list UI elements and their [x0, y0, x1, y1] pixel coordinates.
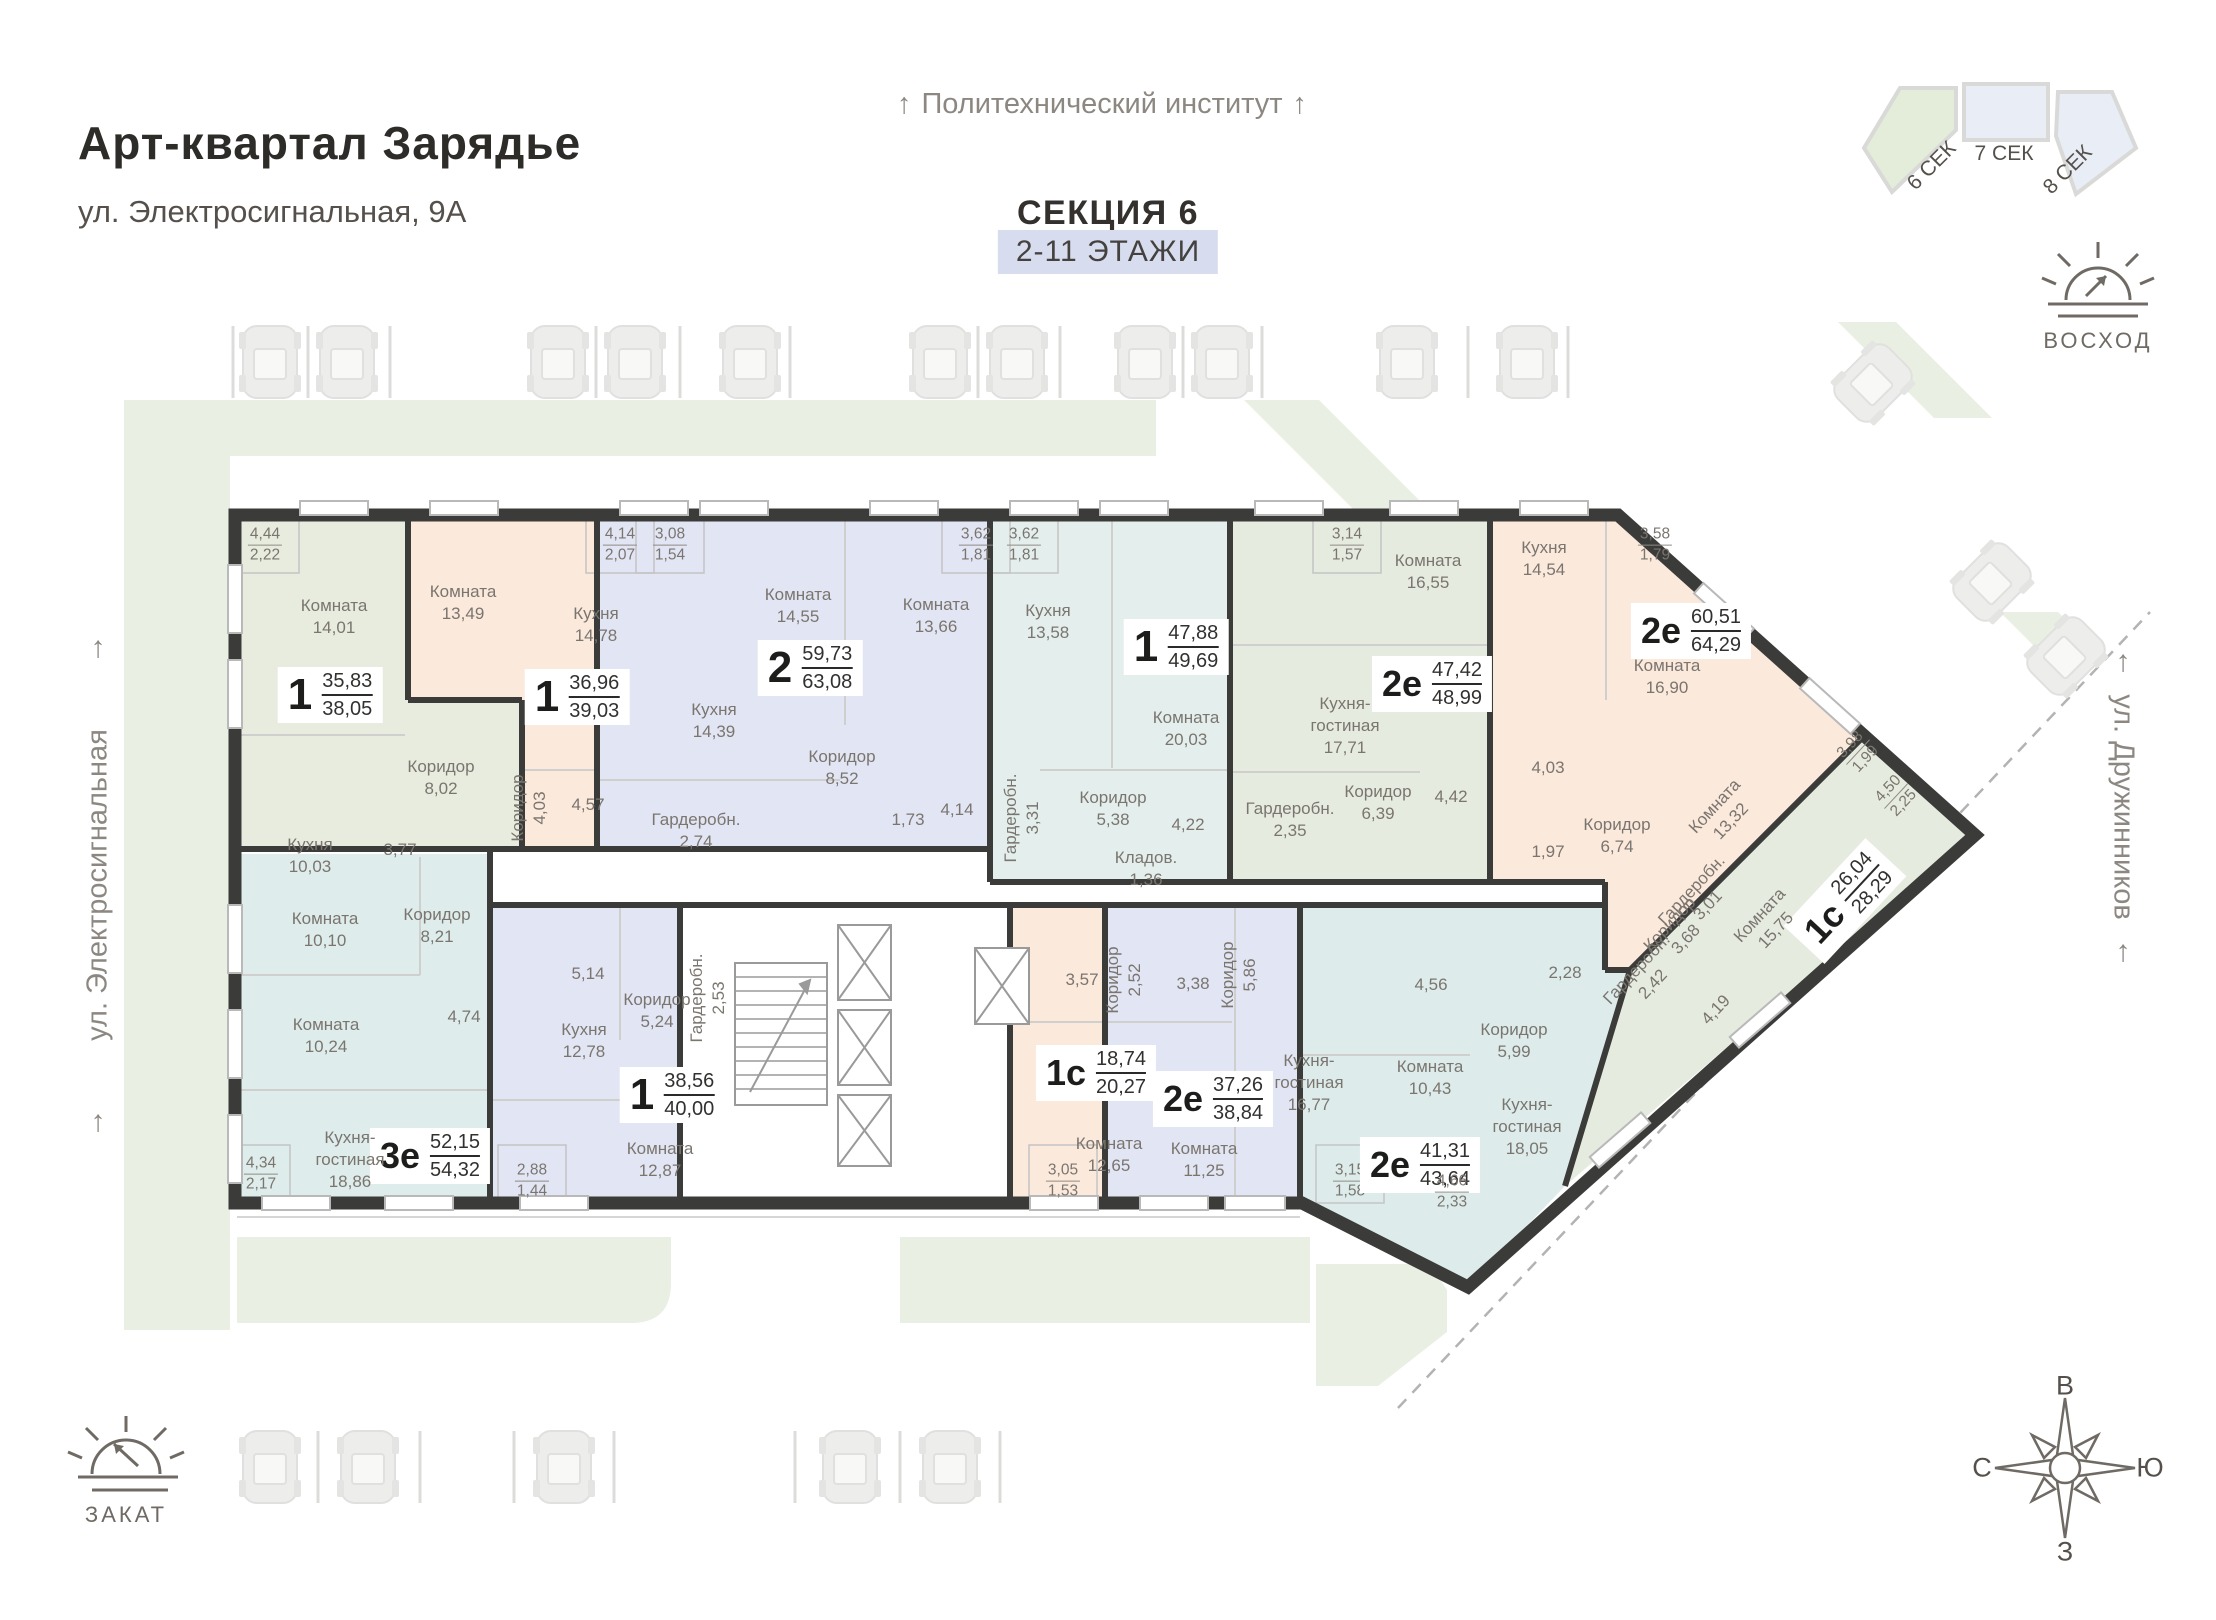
room-label: 4,03: [1531, 757, 1564, 779]
area-total: 48,99: [1432, 685, 1482, 710]
room-area: 4,42: [1434, 786, 1467, 808]
sunrise-label: ВОСХОД: [2043, 328, 2152, 354]
room-area: 5,24: [623, 1011, 690, 1033]
balcony-label: 3,621,81: [1007, 525, 1041, 566]
room-area: 16,55: [1395, 572, 1462, 594]
room-label: Коридор5,38: [1079, 787, 1146, 831]
room-label: Гардеробн.2,53: [686, 954, 730, 1043]
room-label: 3,77: [383, 839, 416, 861]
room-label: Кухня- гостиная18,05: [1492, 1094, 1561, 1160]
balcony-area-reduced: 2,07: [603, 546, 637, 565]
stairs-icon: [735, 963, 827, 1105]
room-label: Гардеробн.3,31: [1000, 774, 1044, 863]
apartment-type: 2е: [1382, 666, 1422, 702]
area-total: 64,29: [1691, 632, 1741, 657]
floor-plan-page: Арт-квартал Зарядье ул. Электросигнальна…: [0, 0, 2216, 1620]
page-title: Арт-квартал Зарядье: [78, 120, 581, 166]
balcony-label: 4,662,33: [1435, 1172, 1469, 1213]
room-area: 11,25: [1171, 1160, 1238, 1182]
floors-badge: 2-11 ЭТАЖИ: [998, 230, 1218, 274]
room-name: Коридор: [1480, 1019, 1547, 1041]
sunrise-icon: [2042, 242, 2154, 316]
balcony-area-reduced: 1,79: [1638, 546, 1672, 565]
room-area: 17,71: [1310, 737, 1379, 759]
apartment-type: 1: [1134, 625, 1158, 669]
apartment-areas: 36,9639,03: [569, 671, 619, 723]
apartment-type: 2е: [1641, 613, 1681, 649]
room-area: 10,24: [293, 1036, 360, 1058]
room-label: Кухня14,54: [1521, 537, 1567, 581]
room-area: 1,36: [1115, 869, 1177, 891]
room-label: Комната13,66: [903, 594, 970, 638]
area-total: 39,03: [569, 698, 619, 723]
room-area: 10,43: [1397, 1078, 1464, 1100]
room-label: Комната14,55: [765, 584, 832, 628]
balcony-label: 4,142,07: [603, 525, 637, 566]
balcony-area-full: 3,05: [1046, 1161, 1080, 1182]
up-arrow-icon: ↑: [2116, 645, 2131, 679]
balcony-area-full: 3,62: [959, 525, 993, 546]
room-label: Коридор2,52: [1102, 946, 1146, 1013]
room-area: 10,03: [287, 856, 333, 878]
room-label: Комната10,24: [293, 1014, 360, 1058]
room-name: Коридор: [403, 904, 470, 926]
room-area: 14,01: [301, 617, 368, 639]
room-label: Коридор4,03: [507, 774, 551, 841]
room-name: Гардеробн.: [1000, 774, 1022, 863]
balcony-label: 4,342,17: [244, 1154, 278, 1195]
room-name: Комната: [1076, 1133, 1143, 1155]
room-label: Комната16,90: [1634, 655, 1701, 699]
apartment-areas: 60,5164,29: [1691, 605, 1741, 657]
room-area: 2,52: [1124, 946, 1146, 1013]
room-name: Комната: [1153, 707, 1220, 729]
apartment-badge-a9[interactable]: 138,5640,00: [620, 1067, 725, 1123]
sunset-label: ЗАКАТ: [85, 1502, 167, 1528]
room-label: Комната13,49: [430, 581, 497, 625]
up-arrow-icon: ↑: [2116, 935, 2131, 969]
room-name: Гардеробн.: [1246, 798, 1335, 820]
balcony-area-reduced: 2,17: [244, 1175, 278, 1194]
balcony-area-full: 3,14: [1330, 525, 1364, 546]
apartment-type: 2е: [1163, 1081, 1203, 1117]
area-total: 54,32: [430, 1157, 480, 1182]
room-label: Коридор5,24: [623, 989, 690, 1033]
minimap-section-7[interactable]: [1964, 84, 2048, 140]
right-street-label: ул. Дружинников: [2107, 694, 2140, 920]
up-arrow-icon: ↑: [887, 88, 922, 120]
room-area: 5,86: [1239, 941, 1261, 1008]
room-label: Кухня10,03: [287, 834, 333, 878]
room-label: 4,22: [1171, 814, 1204, 836]
room-label: 4,56: [1414, 974, 1447, 996]
compass-north: С: [1972, 1453, 1992, 1484]
apartment-badge-a2[interactable]: 136,9639,03: [525, 669, 630, 725]
room-area: 2,53: [708, 954, 730, 1043]
room-area: 13,49: [430, 603, 497, 625]
room-area: 5,14: [571, 963, 604, 985]
room-label: Комната20,03: [1153, 707, 1220, 751]
area-living: 41,31: [1420, 1139, 1470, 1166]
area-total: 63,08: [802, 669, 852, 694]
room-name: Коридор: [808, 746, 875, 768]
apartment-badge-a1[interactable]: 135,8338,05: [278, 667, 383, 723]
apartment-badge-a11[interactable]: 2е37,2638,84: [1153, 1071, 1273, 1127]
room-name: Кухня: [1521, 537, 1567, 559]
room-area: 3,77: [383, 839, 416, 861]
room-name: Кухня: [561, 1019, 607, 1041]
balcony-area-reduced: 2,33: [1435, 1193, 1469, 1212]
top-street-text: Политехнический институт: [921, 88, 1282, 120]
room-name: Коридор: [1102, 946, 1124, 1013]
room-name: Кухня- гостиная: [1310, 693, 1379, 737]
room-area: 6,74: [1583, 836, 1650, 858]
green-strip-top: [230, 400, 1156, 456]
balcony-label: 3,621,81: [959, 525, 993, 566]
room-label: Гардеробн.2,35: [1246, 798, 1335, 842]
room-name: Комната: [301, 595, 368, 617]
apartment-type: 1: [630, 1073, 654, 1117]
balcony-area-full: 4,66: [1435, 1172, 1469, 1193]
room-area: 16,90: [1634, 677, 1701, 699]
balcony-area-reduced: 1,54: [653, 546, 687, 565]
apartment-areas: 52,1554,32: [430, 1130, 480, 1182]
balcony-area-reduced: 1,81: [959, 546, 993, 565]
room-name: Комната: [1634, 655, 1701, 677]
apartment-type: 2е: [1370, 1147, 1410, 1183]
area-living: 47,42: [1432, 658, 1482, 685]
room-label: Комната12,87: [627, 1138, 694, 1182]
room-label: 4,14: [940, 799, 973, 821]
apartment-type: 1с: [1046, 1055, 1086, 1091]
room-area: 20,03: [1153, 729, 1220, 751]
room-area: 16,77: [1274, 1094, 1343, 1116]
room-name: Гардеробн.: [686, 954, 708, 1043]
room-area: 3,57: [1065, 969, 1098, 991]
room-area: 4,22: [1171, 814, 1204, 836]
room-name: Коридор: [1079, 787, 1146, 809]
room-area: 4,56: [1414, 974, 1447, 996]
compass-south: Ю: [2136, 1453, 2163, 1484]
room-area: 12,65: [1076, 1155, 1143, 1177]
room-area: 4,03: [1531, 757, 1564, 779]
balcony-label: 2,881,44: [515, 1161, 549, 1202]
area-living: 18,74: [1096, 1047, 1146, 1074]
apartment-badge-a4[interactable]: 147,8849,69: [1124, 619, 1229, 675]
room-label: Коридор8,02: [407, 756, 474, 800]
up-arrow-icon: ↑: [91, 631, 106, 665]
room-name: Комната: [1171, 1138, 1238, 1160]
room-label: Коридор8,21: [403, 904, 470, 948]
room-label: Комната16,55: [1395, 550, 1462, 594]
green-piece-wing: [1316, 1264, 1447, 1386]
compass-icon: [1995, 1398, 2135, 1538]
room-label: Кухня14,39: [691, 699, 737, 743]
area-total: 20,27: [1096, 1074, 1146, 1099]
room-name: Коридор: [1583, 814, 1650, 836]
room-label: Кухня13,58: [1025, 600, 1071, 644]
apartment-areas: 38,5640,00: [664, 1069, 714, 1121]
room-label: Кухня14,78: [573, 603, 619, 647]
room-area: 10,10: [292, 930, 359, 952]
room-area: 14,78: [573, 625, 619, 647]
balcony-label: 3,051,53: [1046, 1161, 1080, 1202]
section-title: СЕКЦИЯ 6: [1017, 194, 1199, 233]
room-name: Комната: [1397, 1056, 1464, 1078]
room-label: Гардеробн.2,74: [652, 809, 741, 853]
room-name: Кухня- гостиная: [1492, 1094, 1561, 1138]
up-arrow-icon: ↑: [91, 1105, 106, 1139]
balcony-area-reduced: 1,53: [1046, 1182, 1080, 1201]
apartment-badge-a6[interactable]: 2е60,5164,29: [1631, 603, 1751, 659]
top-street-label: ↑Политехнический институт↑: [887, 88, 1317, 121]
room-label: 1,73: [891, 809, 924, 831]
room-label: Кухня- гостиная17,71: [1310, 693, 1379, 759]
room-area: 8,21: [403, 926, 470, 948]
room-area: 12,87: [627, 1160, 694, 1182]
room-name: Кладов.: [1115, 847, 1177, 869]
room-name: Комната: [292, 908, 359, 930]
room-name: Комната: [627, 1138, 694, 1160]
room-label: Кухня12,78: [561, 1019, 607, 1063]
room-name: Комната: [765, 584, 832, 606]
area-living: 35,83: [322, 669, 372, 696]
area-living: 37,26: [1213, 1073, 1263, 1100]
room-label: Коридор8,52: [808, 746, 875, 790]
room-area: 18,86: [315, 1171, 384, 1193]
apartment-badge-a3[interactable]: 259,7363,08: [758, 640, 863, 696]
room-area: 5,99: [1480, 1041, 1547, 1063]
room-area: 1,97: [1531, 841, 1564, 863]
balcony-area-full: 3,58: [1638, 525, 1672, 546]
room-area: 12,78: [561, 1041, 607, 1063]
balcony-area-full: 4,34: [244, 1154, 278, 1175]
page-address: ул. Электросигнальная, 9А: [78, 196, 466, 227]
room-area: 14,39: [691, 721, 737, 743]
apartment-type: 3е: [380, 1138, 420, 1174]
room-name: Комната: [293, 1014, 360, 1036]
room-label: 3,38: [1176, 973, 1209, 995]
apartment-areas: 47,4248,99: [1432, 658, 1482, 710]
balcony-label: 3,081,54: [653, 525, 687, 566]
room-area: 14,54: [1521, 559, 1567, 581]
room-name: Кухня: [1025, 600, 1071, 622]
room-name: Гардеробн.: [652, 809, 741, 831]
room-area: 8,52: [808, 768, 875, 790]
balcony-area-reduced: 2,22: [248, 546, 282, 565]
area-living: 38,56: [664, 1069, 714, 1096]
balcony-area-reduced: 1,44: [515, 1182, 549, 1201]
room-area: 3,38: [1176, 973, 1209, 995]
room-name: Кухня- гостиная: [315, 1127, 384, 1171]
room-name: Комната: [430, 581, 497, 603]
area-living: 36,96: [569, 671, 619, 698]
compass-east: В: [2056, 1371, 2074, 1402]
room-name: Комната: [1395, 550, 1462, 572]
apartment-areas: 37,2638,84: [1213, 1073, 1263, 1125]
apartment-areas: 59,7363,08: [802, 642, 852, 694]
apartment-areas: 35,8338,05: [322, 669, 372, 721]
apartment-type: 1: [288, 673, 312, 717]
room-area: 4,57: [571, 794, 604, 816]
room-label: 1,97: [1531, 841, 1564, 863]
compass-west: З: [2057, 1537, 2073, 1568]
room-name: Коридор: [1344, 781, 1411, 803]
room-area: 13,66: [903, 616, 970, 638]
green-strip-bottom-mid: [900, 1237, 1310, 1323]
room-area: 4,14: [940, 799, 973, 821]
apartment-areas: 47,8849,69: [1168, 621, 1218, 673]
room-label: Коридор5,99: [1480, 1019, 1547, 1063]
area-living: 59,73: [802, 642, 852, 669]
green-strip-left: [124, 400, 230, 1330]
balcony-area-full: 2,88: [515, 1161, 549, 1182]
room-name: Коридор: [623, 989, 690, 1011]
room-name: Коридор: [407, 756, 474, 778]
room-area: 2,28: [1548, 962, 1581, 984]
room-name: Кухня: [691, 699, 737, 721]
room-area: 4,03: [529, 774, 551, 841]
room-name: Кухня- гостиная: [1274, 1050, 1343, 1094]
room-label: Комната10,43: [1397, 1056, 1464, 1100]
up-arrow-icon: ↑: [1283, 88, 1318, 120]
room-area: 13,58: [1025, 622, 1071, 644]
left-street-label: ул. Электросигнальная: [82, 729, 115, 1041]
balcony-area-reduced: 1,81: [1007, 546, 1041, 565]
room-label: Коридор6,74: [1583, 814, 1650, 858]
room-label: Кухня- гостиная18,86: [315, 1127, 384, 1193]
room-name: Коридор: [507, 774, 529, 841]
room-label: 2,28: [1548, 962, 1581, 984]
balcony-label: 4,442,22: [248, 525, 282, 566]
apartment-badge-a8[interactable]: 3е52,1554,32: [370, 1128, 490, 1184]
room-label: Кладов.1,36: [1115, 847, 1177, 891]
apartment-badge-a5[interactable]: 2е47,4248,99: [1372, 656, 1492, 712]
balcony-area-reduced: 1,57: [1330, 546, 1364, 565]
room-name: Кухня: [573, 603, 619, 625]
area-total: 38,84: [1213, 1100, 1263, 1125]
room-label: 4,57: [571, 794, 604, 816]
apartment-type: 1: [535, 675, 559, 719]
green-strip-bottom-left: [237, 1237, 671, 1323]
room-label: Комната12,65: [1076, 1133, 1143, 1177]
apartment-type: 1с: [1798, 896, 1852, 950]
balcony-area-full: 4,44: [248, 525, 282, 546]
room-label: Комната11,25: [1171, 1138, 1238, 1182]
room-name: Кухня: [287, 834, 333, 856]
sunset-icon: [68, 1416, 184, 1490]
area-total: 40,00: [664, 1096, 714, 1121]
room-area: 1,73: [891, 809, 924, 831]
room-label: Комната14,01: [301, 595, 368, 639]
area-total: 38,05: [322, 696, 372, 721]
room-area: 4,74: [447, 1006, 480, 1028]
room-area: 2,35: [1246, 820, 1335, 842]
room-label: 3,57: [1065, 969, 1098, 991]
area-living: 52,15: [430, 1130, 480, 1157]
room-name: Коридор: [1217, 941, 1239, 1008]
balcony-label: 3,581,79: [1638, 525, 1672, 566]
room-label: 4,42: [1434, 786, 1467, 808]
room-area: 2,74: [652, 831, 741, 853]
apartment-type: 2: [768, 646, 792, 690]
balcony-area-full: 4,14: [603, 525, 637, 546]
room-name: Комната: [903, 594, 970, 616]
apartment-areas: 18,7420,27: [1096, 1047, 1146, 1099]
area-total: 49,69: [1168, 648, 1218, 673]
room-area: 3,31: [1022, 774, 1044, 863]
room-area: 5,38: [1079, 809, 1146, 831]
room-label: 4,74: [447, 1006, 480, 1028]
balcony-label: 3,141,57: [1330, 525, 1364, 566]
room-area: 14,55: [765, 606, 832, 628]
room-label: Кухня- гостиная16,77: [1274, 1050, 1343, 1116]
room-label: Коридор5,86: [1217, 941, 1261, 1008]
balcony-area-full: 3,08: [653, 525, 687, 546]
balcony-area-full: 3,62: [1007, 525, 1041, 546]
room-label: 5,14: [571, 963, 604, 985]
room-label: Комната10,10: [292, 908, 359, 952]
area-living: 47,88: [1168, 621, 1218, 648]
room-area: 8,02: [407, 778, 474, 800]
apartment-badge-a10[interactable]: 1с18,7420,27: [1036, 1045, 1156, 1101]
room-area: 6,39: [1344, 803, 1411, 825]
room-label: Коридор6,39: [1344, 781, 1411, 825]
area-living: 60,51: [1691, 605, 1741, 632]
minimap-label-sec7[interactable]: 7 СЕК: [1975, 142, 2034, 166]
room-area: 18,05: [1492, 1138, 1561, 1160]
